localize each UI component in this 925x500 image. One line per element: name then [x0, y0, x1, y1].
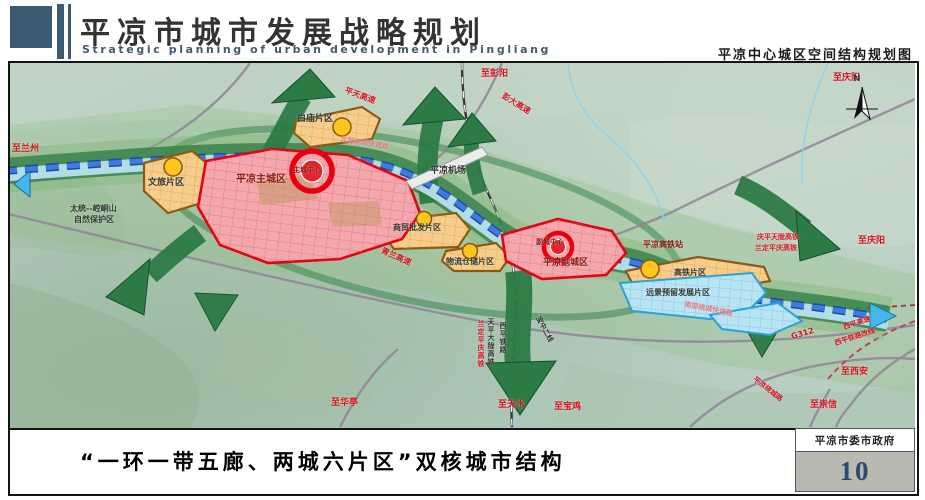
label-rail-ldpq-vertical: 兰定平庆高铁	[477, 320, 484, 368]
label-wuliu-district: 物流仓储片区	[446, 258, 494, 266]
label-rail-xiping-vertical: 西平铁路	[499, 322, 506, 354]
map-caption: “一环一带五廊、两城六片区”双核城市结构	[80, 446, 566, 476]
label-main-city-center: 主城中心	[293, 167, 321, 174]
label-nature-reserve-1: 太统--崆峒山	[70, 205, 117, 213]
page: 平凉市城市发展战略规划 Strategic planning of urban …	[0, 0, 925, 500]
label-yuanjing-district: 远景预留发展片区	[646, 289, 710, 297]
label-to-lanzhou: 至兰州	[12, 145, 39, 154]
agency-name: 平凉市委市政府	[795, 428, 915, 452]
label-compass-n: N	[853, 75, 861, 84]
label-qptl-hsr: 庆平天陇高铁	[757, 234, 799, 241]
label-to-pengyang: 至彭阳	[481, 70, 508, 79]
label-rail-tpdl-vertical: 天平大陇高铁	[487, 318, 494, 366]
label-nature-reserve-2: 自然保护区	[74, 216, 114, 224]
header-accent-square	[10, 6, 52, 48]
label-to-qingyang-right: 至庆阳	[858, 237, 885, 246]
label-baimiao-district: 白庙片区	[297, 115, 333, 124]
planning-map: 至彭阳 至庆阳 平天高速 彭大高速 北部绕城快速路 至兰州 白庙片区 文旅片区 …	[10, 63, 915, 430]
label-to-chongxin: 至崇信	[810, 401, 837, 410]
label-main-city: 平凉主城区	[236, 175, 286, 185]
label-sub-city-center: 副城中心	[536, 239, 564, 246]
label-to-huating: 至华亭	[331, 399, 358, 408]
label-sub-city: 平凉副城区	[543, 259, 588, 268]
label-to-tianshui: 至天水	[498, 401, 525, 410]
label-to-xian: 至西安	[841, 368, 868, 377]
label-gaotie-district: 高铁片区	[674, 269, 706, 277]
label-ldpq-hsr: 兰定平庆高铁	[755, 245, 797, 252]
label-hsr-station: 平凉高铁站	[643, 241, 683, 249]
label-wenlv-district: 文旅片区	[148, 179, 184, 188]
label-shangmao-district: 商贸批发片区	[393, 224, 441, 232]
label-to-baoji: 至宝鸡	[554, 403, 581, 412]
document-subtitle-en: Strategic planning of urban development …	[82, 43, 551, 56]
page-number: 10	[795, 452, 915, 492]
header-accent-bar-thin	[68, 4, 71, 59]
label-airport: 平凉机场	[430, 167, 466, 176]
header-accent-bar	[57, 4, 64, 59]
